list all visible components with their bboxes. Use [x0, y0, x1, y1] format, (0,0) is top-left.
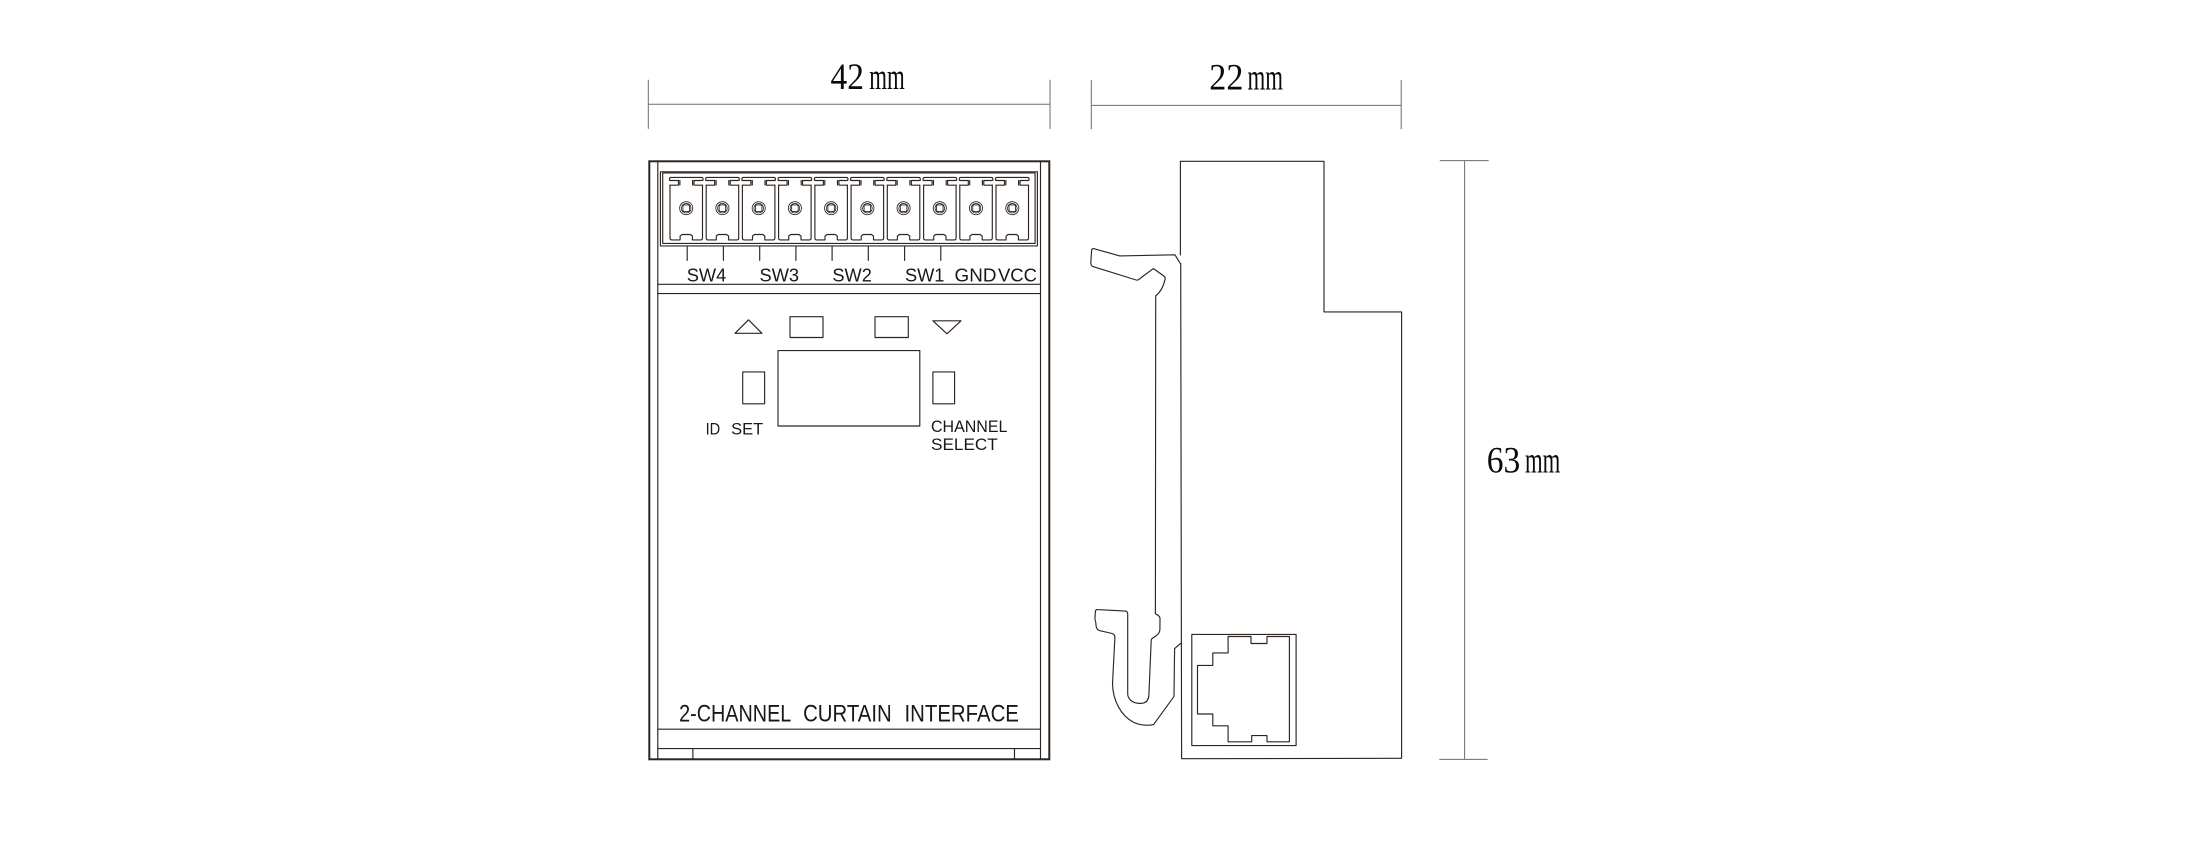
svg-text:mm: mm — [1248, 58, 1284, 99]
svg-text:42: 42 — [831, 57, 864, 98]
svg-text:SW1: SW1 — [905, 264, 945, 285]
svg-text:2-CHANNEL: 2-CHANNEL — [679, 701, 791, 728]
svg-text:CURTAIN: CURTAIN — [803, 701, 892, 728]
svg-text:SW4: SW4 — [687, 264, 727, 285]
svg-text:GND: GND — [955, 264, 997, 285]
svg-text:SET: SET — [731, 420, 763, 439]
svg-text:VCC: VCC — [998, 264, 1037, 285]
svg-text:63: 63 — [1487, 441, 1521, 482]
svg-text:CHANNEL: CHANNEL — [931, 418, 1007, 436]
svg-text:INTERFACE: INTERFACE — [905, 701, 1019, 728]
svg-text:SELECT: SELECT — [931, 436, 998, 454]
svg-text:mm: mm — [1525, 441, 1560, 482]
svg-text:SW3: SW3 — [760, 264, 800, 285]
svg-text:22: 22 — [1209, 58, 1243, 99]
svg-text:mm: mm — [869, 57, 905, 98]
svg-text:ID: ID — [706, 420, 721, 439]
svg-text:SW2: SW2 — [832, 264, 872, 285]
